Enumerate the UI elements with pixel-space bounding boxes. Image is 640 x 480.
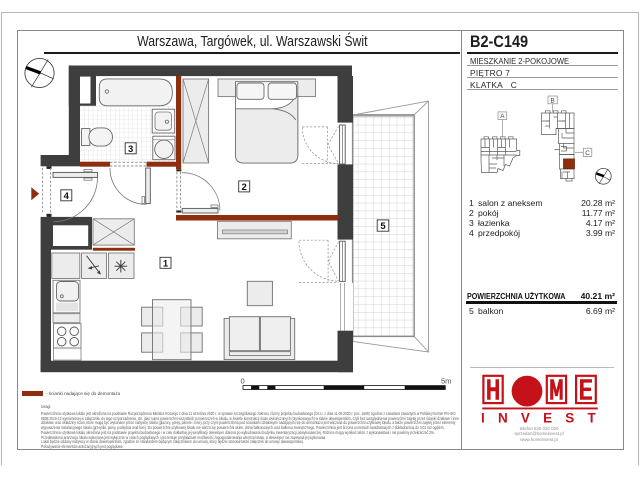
svg-text:5m: 5m (441, 377, 451, 386)
svg-text:C: C (585, 150, 590, 157)
svg-text:4: 4 (64, 191, 70, 202)
svg-text:INVEST: INVEST (481, 411, 609, 426)
svg-text:1: 1 (163, 258, 169, 269)
svg-text:5: 5 (380, 221, 386, 232)
svg-text:0: 0 (241, 377, 245, 386)
svg-text:A: A (500, 113, 505, 120)
svg-text:B: B (550, 97, 554, 104)
svg-text:3: 3 (128, 144, 133, 155)
svg-text:2: 2 (242, 182, 247, 193)
